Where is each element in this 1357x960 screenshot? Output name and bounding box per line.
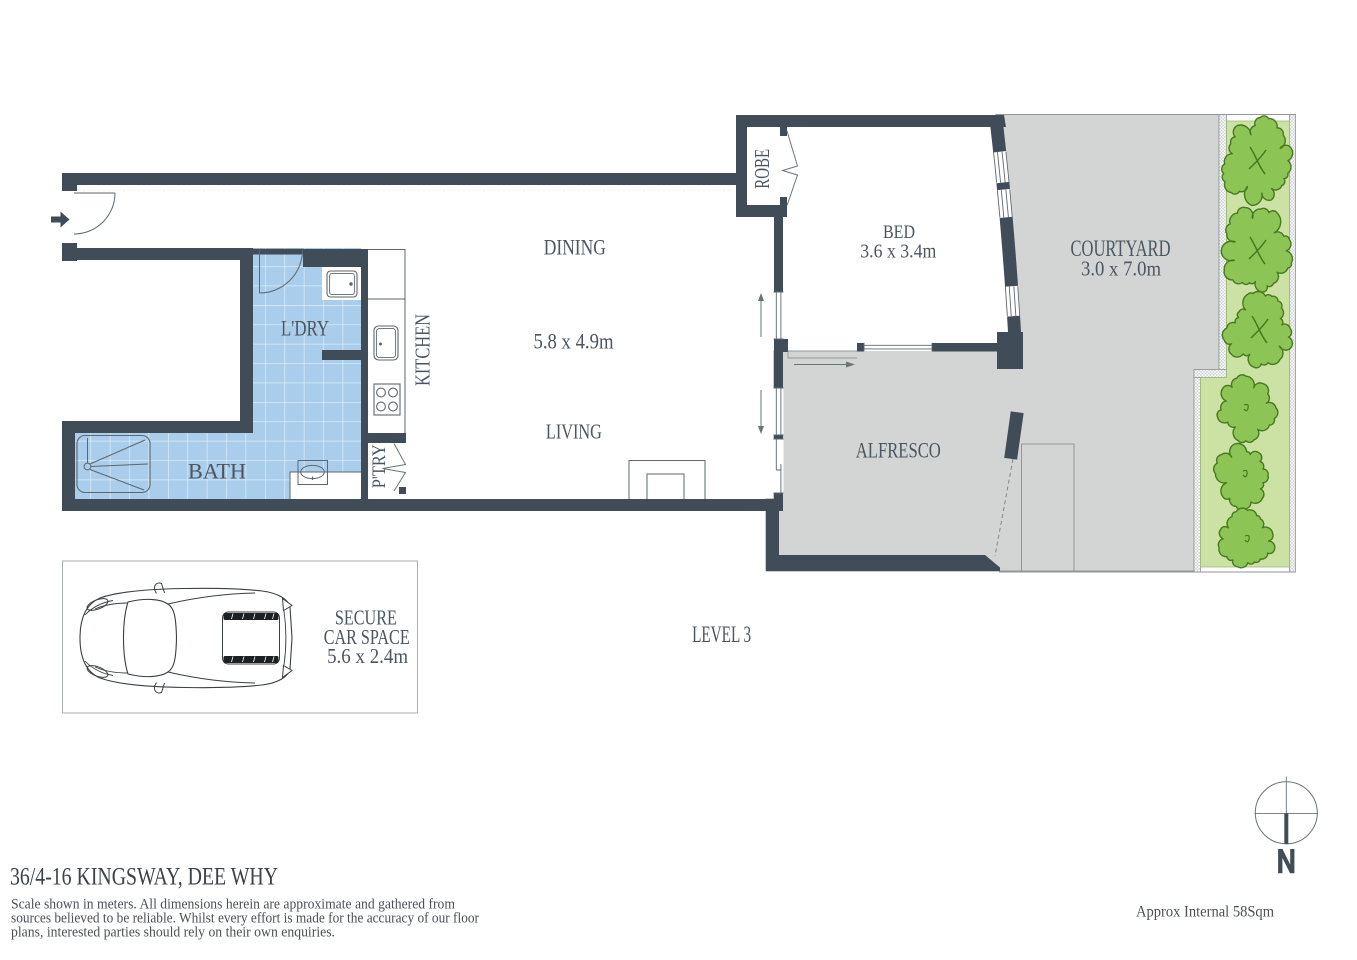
svg-text:3.0 x 7.0m: 3.0 x 7.0m	[1081, 257, 1161, 281]
svg-text:BATH: BATH	[188, 459, 246, 484]
svg-text:KITCHEN: KITCHEN	[411, 314, 435, 386]
svg-text:plans, interested parties shou: plans, interested parties should rely on…	[11, 924, 335, 941]
svg-text:LIVING: LIVING	[546, 420, 602, 444]
svg-text:5.8 x 4.9m: 5.8 x 4.9m	[534, 329, 614, 354]
svg-text:DINING: DINING	[544, 235, 606, 260]
svg-text:P'TRY: P'TRY	[369, 444, 390, 488]
svg-text:3.6 x 3.4m: 3.6 x 3.4m	[860, 241, 936, 263]
svg-text:LEVEL 3: LEVEL 3	[692, 622, 751, 647]
svg-text:5.6 x 2.4m: 5.6 x 2.4m	[327, 644, 408, 668]
svg-text:ROBE: ROBE	[750, 149, 774, 189]
svg-text:36/4-16 KINGSWAY, DEE WHY: 36/4-16 KINGSWAY, DEE WHY	[10, 864, 278, 891]
svg-text:L'DRY: L'DRY	[281, 316, 329, 341]
svg-text:ALFRESCO: ALFRESCO	[856, 438, 941, 463]
svg-text:Approx Internal 58Sqm: Approx Internal 58Sqm	[1136, 904, 1274, 921]
